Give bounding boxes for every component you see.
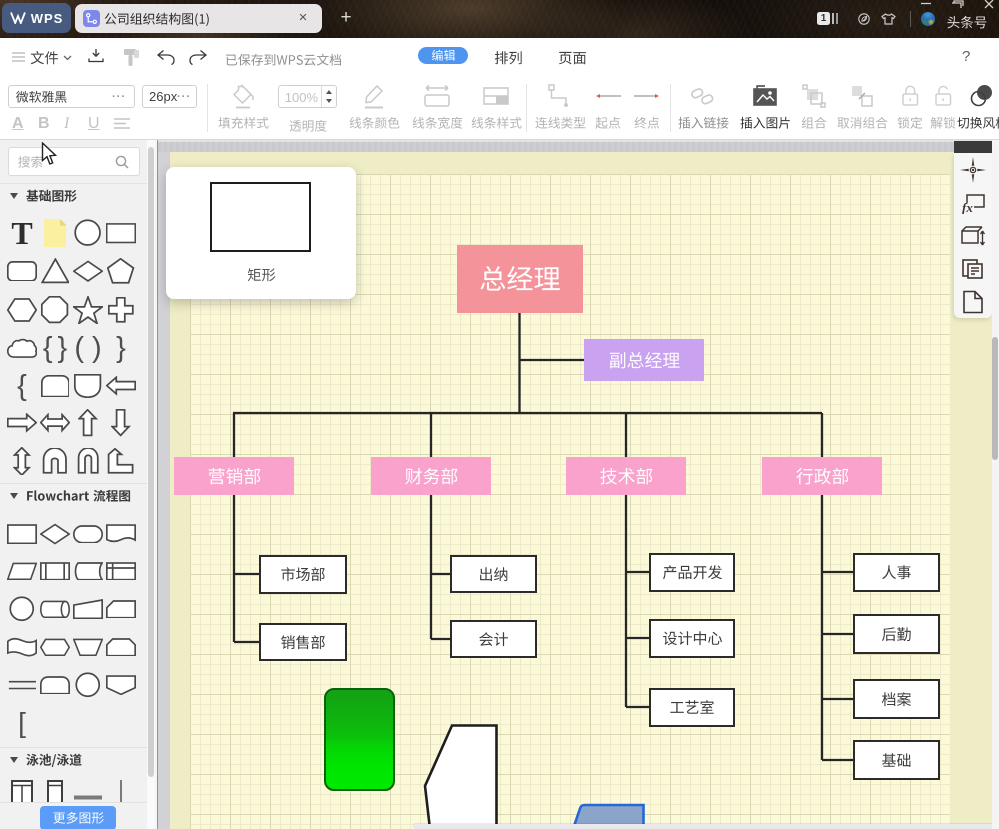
- svg-text:fx: fx: [962, 200, 973, 214]
